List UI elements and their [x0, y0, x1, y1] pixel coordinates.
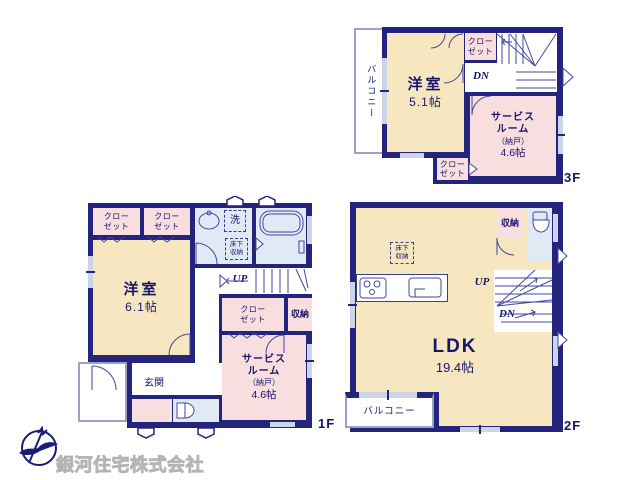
washer-space: 洗 [224, 210, 246, 232]
stairs-2f-up-label: UP [471, 276, 493, 288]
window-3f-left-tick [380, 90, 389, 92]
underfloor-storage-1f: 床下 収納 [225, 238, 248, 260]
room-2f-ldk-name: LDK [400, 336, 510, 358]
room-1f-toilet [173, 399, 219, 422]
window-3f-right-tick [556, 134, 565, 136]
room-1f-yoshitsu: 洋室 6.1帖 [93, 240, 190, 355]
hall-1f-corridor [195, 268, 219, 368]
room-1f-service-sub: （納戸） [248, 378, 280, 387]
floor-3f-label: 3F [564, 170, 581, 185]
balcony-2f-label: バルコニー [363, 406, 415, 417]
underfloor-2f-label: 床下 収納 [396, 245, 409, 261]
room-1f-service-size: 4.6帖 [251, 389, 276, 401]
room-3f-service-name: サービス ルーム [491, 112, 535, 136]
floor-1f-label: 1F [318, 416, 335, 431]
porch-1f [78, 362, 127, 422]
room-3f-closet-bottom: クロー ゼット [437, 158, 468, 180]
stairs-2f-dn-label: DN [495, 308, 519, 320]
window-1f-service-right-tick [305, 360, 314, 362]
room-2f-toilet [528, 208, 552, 261]
vent-icon [198, 428, 214, 438]
washer-label: 洗 [230, 215, 240, 227]
room-1f-storage: 収納 [288, 298, 312, 331]
window-2f-right [553, 336, 558, 366]
room-1f-closet-b: クロー ゼット [144, 208, 190, 235]
company-watermark: 銀河住宅株式会社 [56, 451, 204, 477]
room-3f-yoshitsu-size: 5.1帖 [409, 95, 442, 109]
kitchen-counter [356, 274, 448, 302]
entrance-label: 玄関 [132, 378, 176, 390]
room-2f-storage-label: 収納 [501, 218, 519, 229]
room-1f-closet-a-label: クロー ゼット [104, 212, 130, 231]
room-3f-closet-top: クロー ゼット [465, 33, 496, 60]
underfloor-1f-label: 床下 収納 [230, 241, 243, 257]
room-3f-stairs [497, 33, 557, 92]
entrance-tataki [132, 399, 172, 422]
room-1f-closet-b-label: クロー ゼット [154, 212, 180, 231]
window-1f-left-tick [86, 271, 95, 273]
room-1f-service: サービス ルーム （納戸） 4.6帖 [222, 335, 306, 420]
floor-1f: クロー ゼット クロー ゼット 洋室 6.1帖 洗 床下 収納 UP クロー ゼ… [78, 196, 340, 441]
room-3f-yoshitsu: 洋室 5.1帖 [387, 33, 464, 152]
room-1f-bath [256, 208, 306, 264]
window-2f-bottom-tick [479, 425, 481, 434]
window-2f-toilet [553, 214, 558, 242]
room-1f-closet-c: クロー ゼット [222, 298, 284, 331]
window-2f-left-tick [348, 304, 357, 306]
room-2f-ldk-size: 19.4帖 [400, 360, 510, 375]
balcony-3f-label: バルコニー [366, 64, 377, 119]
floorplan-canvas: バルコニー 洋室 5.1帖 クロー ゼット DN サービス ルーム （納戸） 4… [0, 0, 640, 480]
room-1f-closet-c-label: クロー ゼット [240, 305, 266, 324]
room-1f-service-name: サービス ルーム [242, 354, 286, 378]
stairs-1f-up-label: UP [228, 273, 252, 285]
room-2f-ldk-labels: LDK 19.4帖 [400, 336, 510, 376]
compass-n-glyph [38, 428, 47, 434]
room-1f-closet-a: クロー ゼット [93, 208, 140, 235]
bird-logo-icon [19, 442, 58, 455]
room-1f-yoshitsu-size: 6.1帖 [125, 300, 158, 314]
floor-2f-label: 2F [564, 418, 581, 433]
room-3f-closet-bottom-label: クロー ゼット [440, 160, 466, 179]
room-3f-closet-top-label: クロー ゼット [468, 37, 494, 56]
room-2f-stairs [494, 270, 552, 332]
room-3f-service-sub: （納戸） [497, 137, 529, 146]
floor-3f: バルコニー 洋室 5.1帖 クロー ゼット DN サービス ルーム （納戸） 4… [350, 20, 600, 192]
floor-2f: 収納 床下 収納 UP DN LDK 19.4帖 バルコニー 2F [345, 196, 600, 441]
room-1f-yoshitsu-name: 洋室 [123, 281, 159, 299]
room-3f-service: サービス ルーム （納戸） 4.6帖 [470, 96, 556, 176]
window-1f-bath [307, 216, 312, 244]
room-2f-ldk-lower [439, 392, 552, 426]
underfloor-storage-2f: 床下 収納 [390, 242, 414, 264]
stairs-3f-dn-label: DN [466, 70, 496, 82]
casement-window-icon [563, 68, 573, 86]
room-2f-storage: 収納 [497, 208, 523, 238]
window-1f-service-bottom [270, 422, 295, 427]
room-3f-yoshitsu-name: 洋室 [407, 76, 443, 94]
window-3f-bottom [400, 153, 424, 158]
window-2f-balcony-tick [387, 390, 389, 400]
room-1f-storage-label: 収納 [291, 309, 309, 320]
vent-icon [138, 428, 154, 438]
room-3f-service-size: 4.6帖 [500, 147, 525, 159]
